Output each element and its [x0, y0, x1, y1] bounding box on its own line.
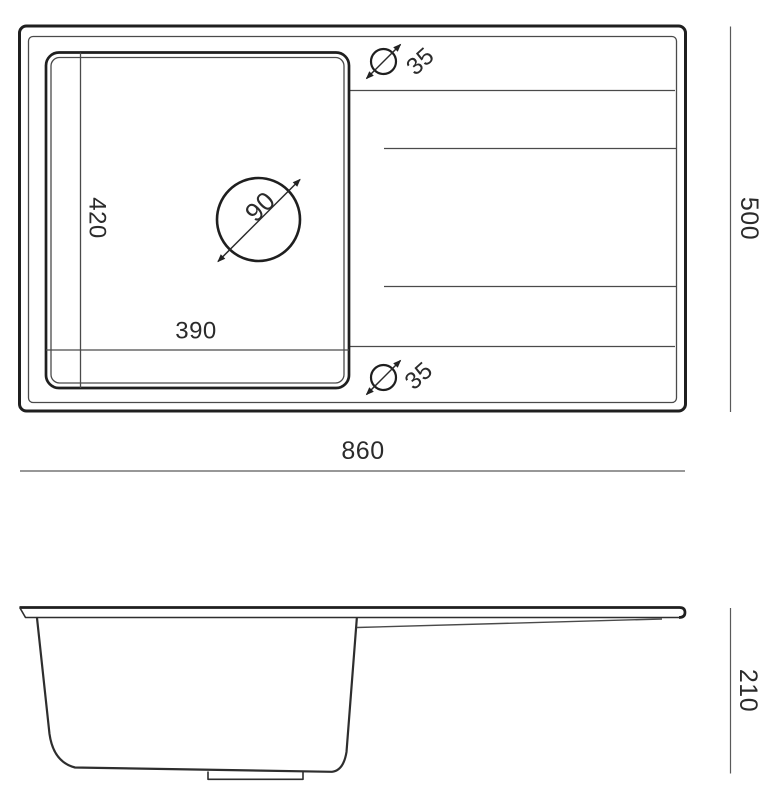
drain-outlet-boss — [208, 772, 303, 779]
overall-width-label: 860 — [341, 437, 384, 465]
side-profile-rim-top — [20, 608, 686, 618]
bowl-depth-label: 420 — [84, 197, 111, 239]
side-profile-drainboard-underside — [357, 619, 662, 628]
tap-hole-top-diameter-label: 35 — [401, 42, 440, 81]
sink-dimension-drawing: 90 35 35 420 390 500 860 — [0, 0, 781, 800]
top-view: 90 35 35 420 390 500 860 — [20, 26, 764, 471]
bowl-width-label: 390 — [175, 318, 217, 345]
side-view: 210 — [20, 608, 763, 780]
overall-height-label: 210 — [734, 669, 762, 712]
technical-drawing-page: 90 35 35 420 390 500 860 — [0, 0, 781, 800]
overall-depth-label: 500 — [735, 197, 763, 240]
tap-hole-bottom-diameter-label: 35 — [400, 357, 439, 396]
side-profile-bowl — [37, 618, 357, 772]
side-profile-rim-underside — [20, 608, 679, 618]
